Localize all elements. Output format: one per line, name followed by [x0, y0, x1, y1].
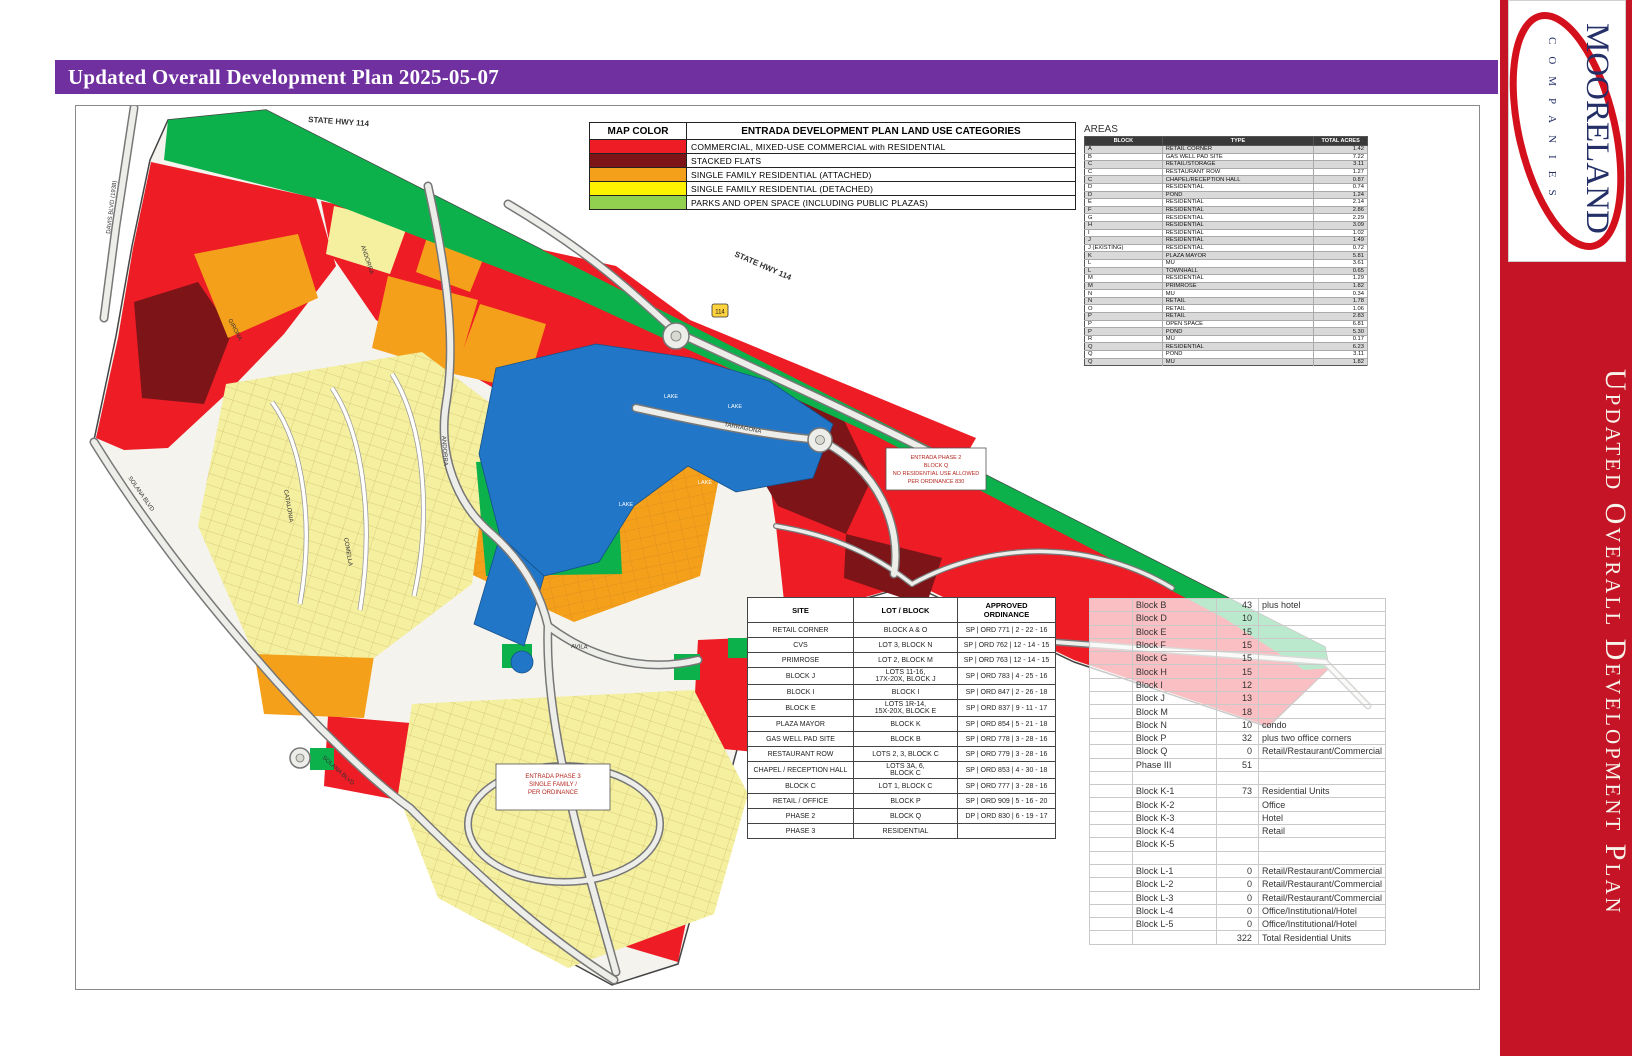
sidebar: MOORELAND COMPANIES Updated Overall Deve…	[1500, 0, 1632, 1056]
ordinance-row: PLAZA MAYORBLOCK KSP | ORD 854 | 5 - 21 …	[748, 717, 1056, 732]
ordinance-row: PHASE 3RESIDENTIAL	[748, 824, 1056, 839]
map-frame: 114 STATE HWY 114 STATE HWY 114 DAVIS BL…	[75, 105, 1480, 990]
areas-row: KPLAZA MAYOR5.81	[1085, 252, 1368, 260]
legend-label: PARKS AND OPEN SPACE (INCLUDING PUBLIC P…	[687, 196, 1076, 210]
block-count-row: Block N10condo	[1090, 718, 1386, 731]
ordinance-row: CHAPEL / RECEPTION HALLLOTS 3A, 6, BLOCK…	[748, 762, 1056, 779]
areas-row: DPOND1.24	[1085, 191, 1368, 199]
lake-label-1: LAKE	[664, 394, 678, 400]
areas-row: QRESIDENTIAL6.23	[1085, 343, 1368, 351]
areas-row: ORETAIL1.06	[1085, 305, 1368, 313]
legend-swatch	[590, 196, 687, 210]
page-title: Updated Overall Development Plan 2025-05…	[55, 65, 499, 90]
ordinance-header-cell: APPROVED ORDINANCE	[958, 598, 1056, 623]
ordinance-row: BLOCK ELOTS 1R-14, 15X-20X, BLOCK ESP | …	[748, 700, 1056, 717]
street-label-hwy114-top: STATE HWY 114	[308, 115, 370, 128]
legend-label: SINGLE FAMILY RESIDENTIAL (DETACHED)	[687, 182, 1076, 196]
areas-row: DRESIDENTIAL0.74	[1085, 183, 1368, 191]
block-count-row: Block K-4Retail	[1090, 825, 1386, 838]
areas-row: GRESIDENTIAL2.29	[1085, 214, 1368, 222]
block-count-row: Block G15	[1090, 652, 1386, 665]
page: Updated Overall Development Plan 2025-05…	[0, 0, 1632, 1056]
block-count-row: Block K-2Office	[1090, 798, 1386, 811]
legend-row: SINGLE FAMILY RESIDENTIAL (DETACHED)	[590, 182, 1076, 196]
areas-row: FRESIDENTIAL2.86	[1085, 206, 1368, 214]
areas-row: CRESTAURANT ROW1.27	[1085, 168, 1368, 176]
svg-text:114: 114	[715, 310, 725, 316]
logo-sub-text: COMPANIES	[1546, 37, 1558, 208]
ordinance-table: SITELOT / BLOCKAPPROVED ORDINANCE RETAIL…	[747, 597, 1056, 839]
areas-header-cell: TOTAL ACRES	[1314, 137, 1368, 146]
legend-header-color: MAP COLOR	[590, 123, 687, 140]
ordinance-row: PRIMROSELOT 2, BLOCK MSP | ORD 763 | 12 …	[748, 653, 1056, 668]
legend-label: STACKED FLATS	[687, 154, 1076, 168]
note-phase3: ENTRADA PHASE 3SINGLE FAMILY /PER ORDINA…	[496, 764, 610, 810]
areas-row: ERESIDENTIAL2.14	[1085, 199, 1368, 207]
ordinance-row: BLOCK IBLOCK ISP | ORD 847 | 2 - 26 - 18	[748, 685, 1056, 700]
ordinance-row: RETAIL / OFFICEBLOCK PSP | ORD 909 | 5 -…	[748, 794, 1056, 809]
areas-row: HRESIDENTIAL3.09	[1085, 221, 1368, 229]
ordinance-header-cell: LOT / BLOCK	[854, 598, 958, 623]
legend-header-categories: ENTRADA DEVELOPMENT PLAN LAND USE CATEGO…	[687, 123, 1076, 140]
toll-badge: 114	[712, 304, 728, 317]
legend-row: PARKS AND OPEN SPACE (INCLUDING PUBLIC P…	[590, 196, 1076, 210]
areas-row: CRETAIL/STORAGE3.11	[1085, 161, 1368, 169]
ordinance-row: RETAIL CORNERBLOCK A & OSP | ORD 771 | 2…	[748, 623, 1056, 638]
areas-header-cell: BLOCK	[1085, 137, 1163, 146]
block-count-row: Block L-20Retail/Restaurant/Commercial	[1090, 878, 1386, 891]
block-count-row: Block Q0Retail/Restaurant/Commercial	[1090, 745, 1386, 758]
areas-header-cell: TYPE	[1162, 137, 1313, 146]
legend-swatch	[590, 182, 687, 196]
block-count-row: 322Total Residential Units	[1090, 931, 1386, 944]
block-count-row: Block K-3Hotel	[1090, 811, 1386, 824]
areas-table-wrap: AREAS BLOCKTYPETOTAL ACRES ARETAIL CORNE…	[1084, 124, 1368, 366]
street-label-hwy114-mid: STATE HWY 114	[733, 250, 793, 283]
block-count-row: Block L-10Retail/Restaurant/Commercial	[1090, 864, 1386, 877]
legend-table: MAP COLOR ENTRADA DEVELOPMENT PLAN LAND …	[589, 122, 1076, 210]
block-count-row: Block H15	[1090, 665, 1386, 678]
ordinance-row: CVSLOT 3, BLOCK NSP | ORD 762 | 12 - 14 …	[748, 638, 1056, 653]
areas-row: JRESIDENTIAL1.49	[1085, 237, 1368, 245]
ordinance-row: BLOCK CLOT 1, BLOCK CSP | ORD 777 | 3 - …	[748, 779, 1056, 794]
block-count-row: Phase III51	[1090, 758, 1386, 771]
block-count-row: Block I12	[1090, 678, 1386, 691]
areas-row: QPOND3.11	[1085, 351, 1368, 359]
areas-row: PPOND5.30	[1085, 328, 1368, 336]
block-count-row: Block M18	[1090, 705, 1386, 718]
areas-row: LTOWNHALL0.65	[1085, 267, 1368, 275]
areas-row: CCHAPEL/RECEPTION HALL0.87	[1085, 176, 1368, 184]
legend-row: SINGLE FAMILY RESIDENTIAL (ATTACHED)	[590, 168, 1076, 182]
areas-row: RMU0.17	[1085, 335, 1368, 343]
zone-sf-attached-south	[254, 652, 374, 718]
block-count-row	[1090, 851, 1386, 864]
header-bar: Updated Overall Development Plan 2025-05…	[55, 60, 1498, 94]
areas-row: PRETAIL2.83	[1085, 313, 1368, 321]
block-count-row: Block L-40Office/Institutional/Hotel	[1090, 904, 1386, 917]
areas-header-row: BLOCKTYPETOTAL ACRES	[1085, 137, 1368, 146]
street-label-avila: AVILA	[571, 644, 588, 651]
areas-row: IRESIDENTIAL1.02	[1085, 229, 1368, 237]
sidebar-vertical-title: Updated Overall Development Plan	[1500, 292, 1632, 992]
areas-row: QMU1.82	[1085, 358, 1368, 366]
areas-table: BLOCKTYPETOTAL ACRES ARETAIL CORNER1.42B…	[1084, 136, 1368, 366]
legend-swatch	[590, 140, 687, 154]
block-count-row: Block D10	[1090, 612, 1386, 625]
block-count-row: Block P32plus two office corners	[1090, 731, 1386, 744]
block-count-row	[1090, 771, 1386, 784]
ordinance-row: BLOCK JLOTS 11-16, 17X-20X, BLOCK JSP | …	[748, 668, 1056, 685]
pond-small	[511, 651, 533, 673]
ordinance-header-row: SITELOT / BLOCKAPPROVED ORDINANCE	[748, 598, 1056, 623]
lake-label-4: LAKE	[698, 480, 712, 486]
legend-swatch	[590, 154, 687, 168]
ordinance-row: PHASE 2BLOCK QDP | ORD 830 | 6 - 19 - 17	[748, 809, 1056, 824]
svg-text:ENTRADA PHASE 3SINGLE FAMILY /: ENTRADA PHASE 3SINGLE FAMILY /PER ORDINA…	[525, 774, 581, 796]
areas-row: NMU0.34	[1085, 290, 1368, 298]
block-count-row: Block K-5	[1090, 838, 1386, 851]
areas-row: BGAS WELL PAD SITE7.22	[1085, 153, 1368, 161]
block-count-row: Block K-173Residential Units	[1090, 785, 1386, 798]
mooreland-logo: MOORELAND COMPANIES	[1508, 0, 1626, 262]
areas-row: ARETAIL CORNER1.42	[1085, 146, 1368, 154]
legend-label: COMMERCIAL, MIXED-USE COMMERCIAL with RE…	[687, 140, 1076, 154]
legend-swatch	[590, 168, 687, 182]
areas-row: POPEN SPACE6.81	[1085, 320, 1368, 328]
lake-label-2: LAKE	[728, 404, 742, 410]
ordinance-row: GAS WELL PAD SITEBLOCK BSP | ORD 778 | 3…	[748, 732, 1056, 747]
block-count-row: Block L-30Retail/Restaurant/Commercial	[1090, 891, 1386, 904]
areas-row: MPRIMROSE1.82	[1085, 282, 1368, 290]
block-count-row: Block B43plus hotel	[1090, 599, 1386, 612]
legend-row: COMMERCIAL, MIXED-USE COMMERCIAL with RE…	[590, 140, 1076, 154]
block-count-row: Block F15	[1090, 638, 1386, 651]
block-count-row: Block E15	[1090, 625, 1386, 638]
logo-name-text: MOORELAND	[1579, 23, 1615, 234]
block-count-row: Block J13	[1090, 692, 1386, 705]
note-phase2: ENTRADA PHASE 2BLOCK QNO RESIDENTIAL USE…	[886, 448, 986, 490]
ordinance-row: RESTAURANT ROWLOTS 2, 3, BLOCK CSP | ORD…	[748, 747, 1056, 762]
legend-header-row: MAP COLOR ENTRADA DEVELOPMENT PLAN LAND …	[590, 123, 1076, 140]
block-count-row: Block L-50Office/Institutional/Hotel	[1090, 918, 1386, 931]
legend-label: SINGLE FAMILY RESIDENTIAL (ATTACHED)	[687, 168, 1076, 182]
areas-table-title: AREAS	[1084, 124, 1368, 135]
areas-row: MRESIDENTIAL1.29	[1085, 275, 1368, 283]
ordinance-header-cell: SITE	[748, 598, 854, 623]
areas-row: J (EXISTING)RESIDENTIAL0.72	[1085, 244, 1368, 252]
lake-label-3: LAKE	[619, 502, 633, 508]
block-count-table: Block B43plus hotelBlock D10Block E15Blo…	[1089, 598, 1386, 945]
legend-row: STACKED FLATS	[590, 154, 1076, 168]
areas-row: NRETAIL1.78	[1085, 297, 1368, 305]
areas-row: LMU3.61	[1085, 259, 1368, 267]
mooreland-logo-art: MOORELAND COMPANIES	[1509, 1, 1625, 261]
